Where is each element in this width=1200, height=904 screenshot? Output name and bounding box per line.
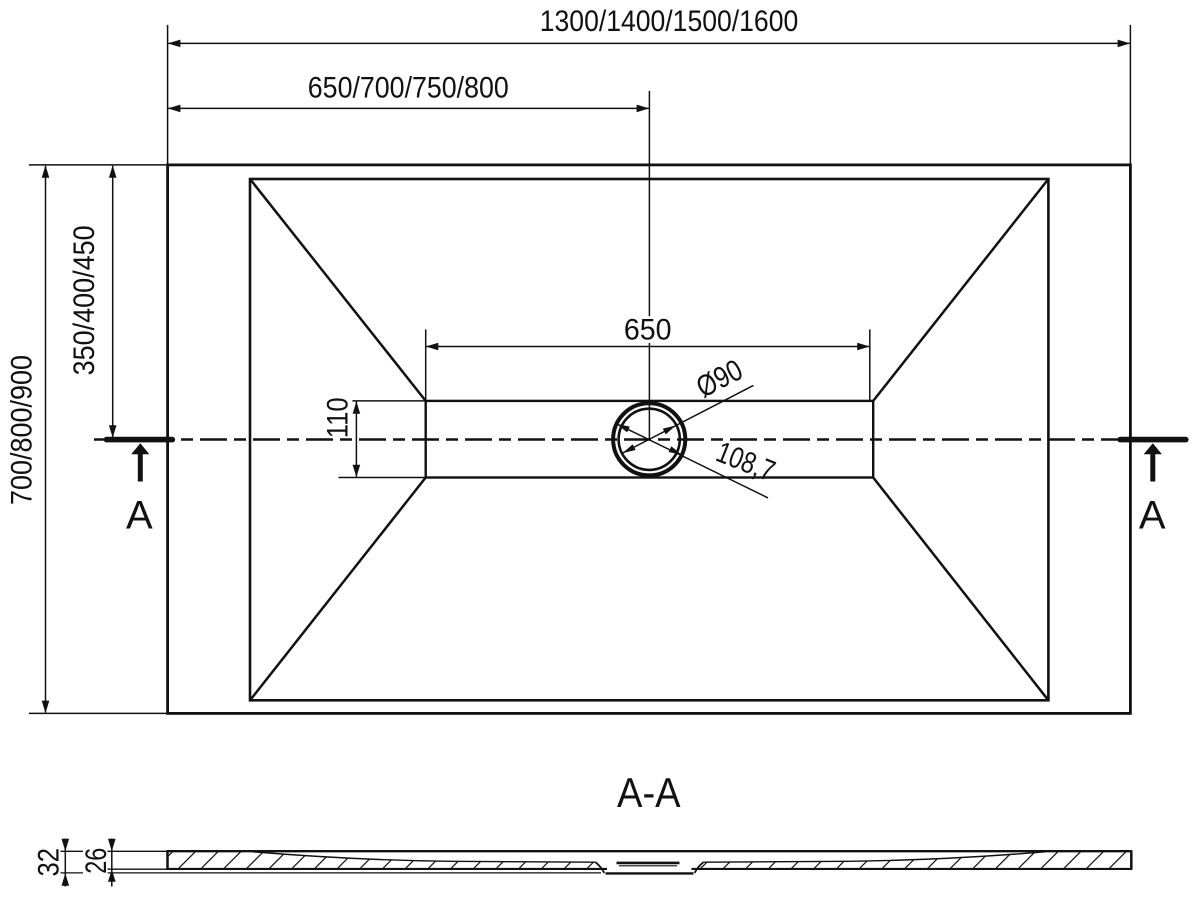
svg-text:350/400/450: 350/400/450 [68,225,101,375]
svg-text:1300/1400/1500/1600: 1300/1400/1500/1600 [540,5,799,38]
svg-text:32: 32 [32,848,65,877]
svg-text:650/700/750/800: 650/700/750/800 [308,72,509,105]
svg-text:A-A: A-A [617,769,681,816]
svg-text:650: 650 [624,313,672,346]
svg-text:26: 26 [80,848,113,874]
svg-text:A: A [126,493,153,537]
svg-text:A: A [1139,493,1166,537]
svg-text:700/800/900: 700/800/900 [6,355,39,505]
svg-text:110: 110 [322,397,355,438]
